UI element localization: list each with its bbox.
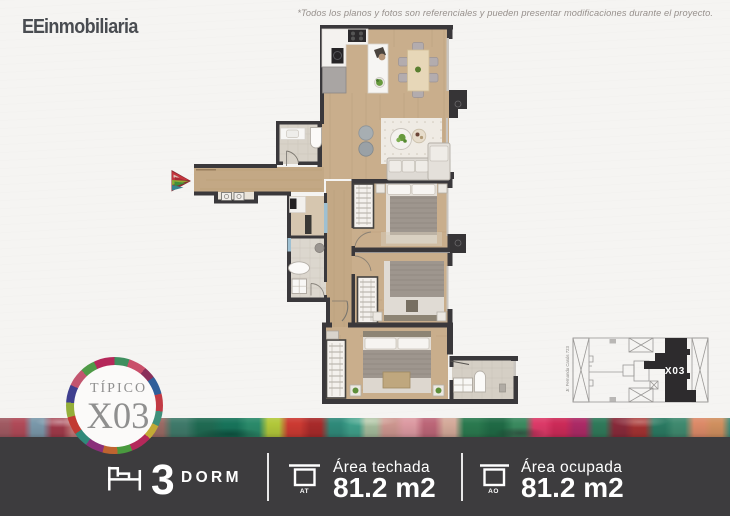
svg-text:AO: AO [488, 488, 499, 495]
svg-text:AT: AT [300, 488, 309, 495]
svg-text:X03: X03 [665, 366, 685, 377]
svg-text:Jr. Fernando Casós 723: Jr. Fernando Casós 723 [565, 346, 570, 392]
